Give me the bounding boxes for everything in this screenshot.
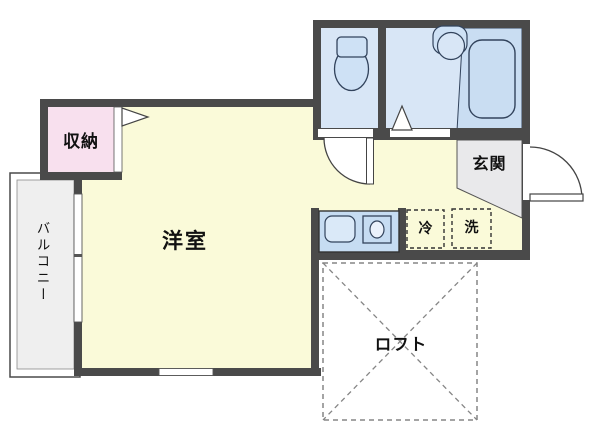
wall-block-top: [313, 20, 530, 28]
loft-label: ロフト: [345, 337, 457, 354]
washbasin-icon: [438, 33, 465, 60]
entrance-door-arc-icon: [530, 147, 582, 199]
balcony-window: [74, 194, 82, 322]
refrigerator-label: 冷: [407, 222, 444, 236]
wall-right: [522, 20, 530, 260]
entrance-label: 玄関: [457, 156, 522, 172]
bottom-window: [159, 369, 213, 376]
stove-burner-icon: [370, 221, 384, 238]
toilet-door-opening: [318, 129, 373, 137]
closet-label: 収納: [48, 134, 114, 151]
wall-outer-left: [40, 99, 48, 180]
wall-top-main: [40, 99, 321, 107]
entrance-door-leaf: [530, 194, 583, 201]
toilet-tank-icon: [337, 37, 367, 57]
washer-label: 洗: [452, 221, 491, 235]
entrance-door-opening: [523, 144, 530, 200]
main-room-label: 洋室: [128, 231, 242, 252]
balcony-window-mullion: [74, 254, 82, 257]
floor-plan-drawing: [0, 0, 600, 440]
bathtub-icon: [469, 40, 515, 118]
wall-left-lower: [74, 322, 82, 372]
closet-door-panel: [114, 107, 122, 172]
wall-mid-vertical: [311, 208, 319, 376]
room-fills: [10, 28, 522, 377]
balcony-label: バルコニー: [34, 221, 48, 304]
wall-toilet-bath-divider: [378, 28, 386, 140]
wall-left-upper: [74, 172, 82, 194]
floor-plan: 収納 洋室 バルコニー 玄関 冷 洗 ロフト: [0, 0, 600, 440]
wall-block-left: [313, 20, 321, 140]
kitchen-sink-icon: [325, 216, 355, 242]
toilet-door-leaf: [367, 138, 374, 184]
